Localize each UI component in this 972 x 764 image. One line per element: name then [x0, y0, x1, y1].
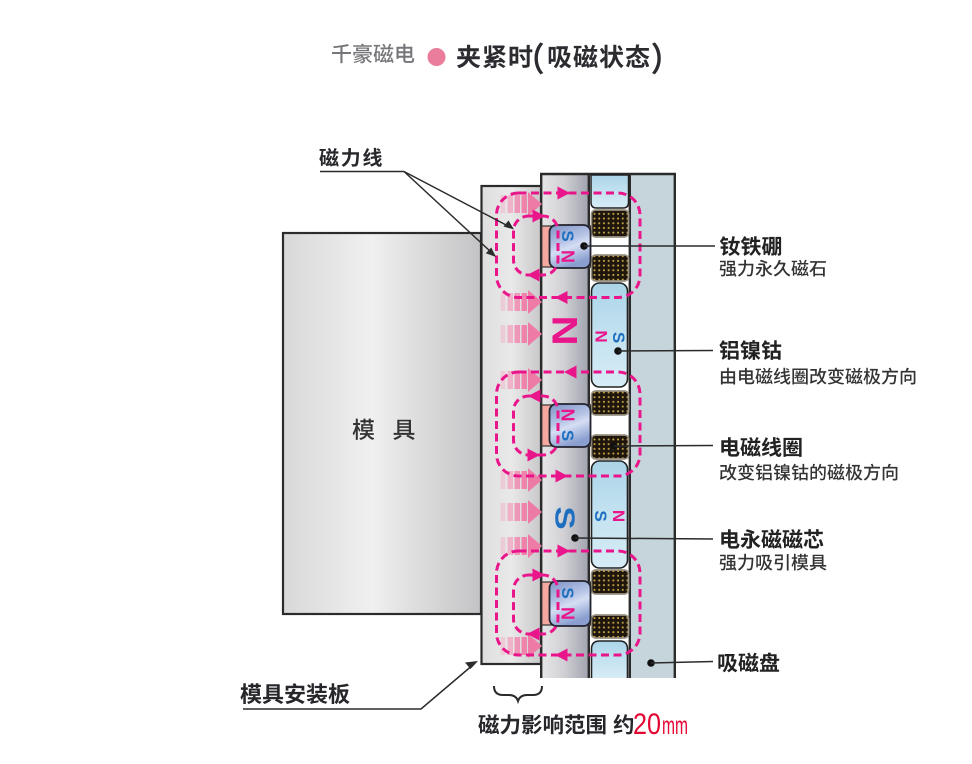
svg-text:N: N	[558, 250, 578, 263]
svg-text:S: S	[558, 587, 577, 598]
svg-text:mm: mm	[662, 712, 688, 740]
svg-text:S: S	[558, 230, 577, 241]
svg-text:S: S	[609, 332, 628, 343]
svg-text:S: S	[591, 510, 610, 521]
svg-text:N: N	[558, 607, 578, 620]
svg-text:N: N	[545, 315, 584, 345]
svg-text:N: N	[558, 409, 578, 422]
svg-text:N: N	[609, 510, 628, 522]
svg-text:S: S	[558, 430, 577, 441]
svg-text:S: S	[549, 506, 580, 529]
svg-text:N: N	[592, 330, 611, 342]
svg-text:20: 20	[633, 708, 661, 741]
